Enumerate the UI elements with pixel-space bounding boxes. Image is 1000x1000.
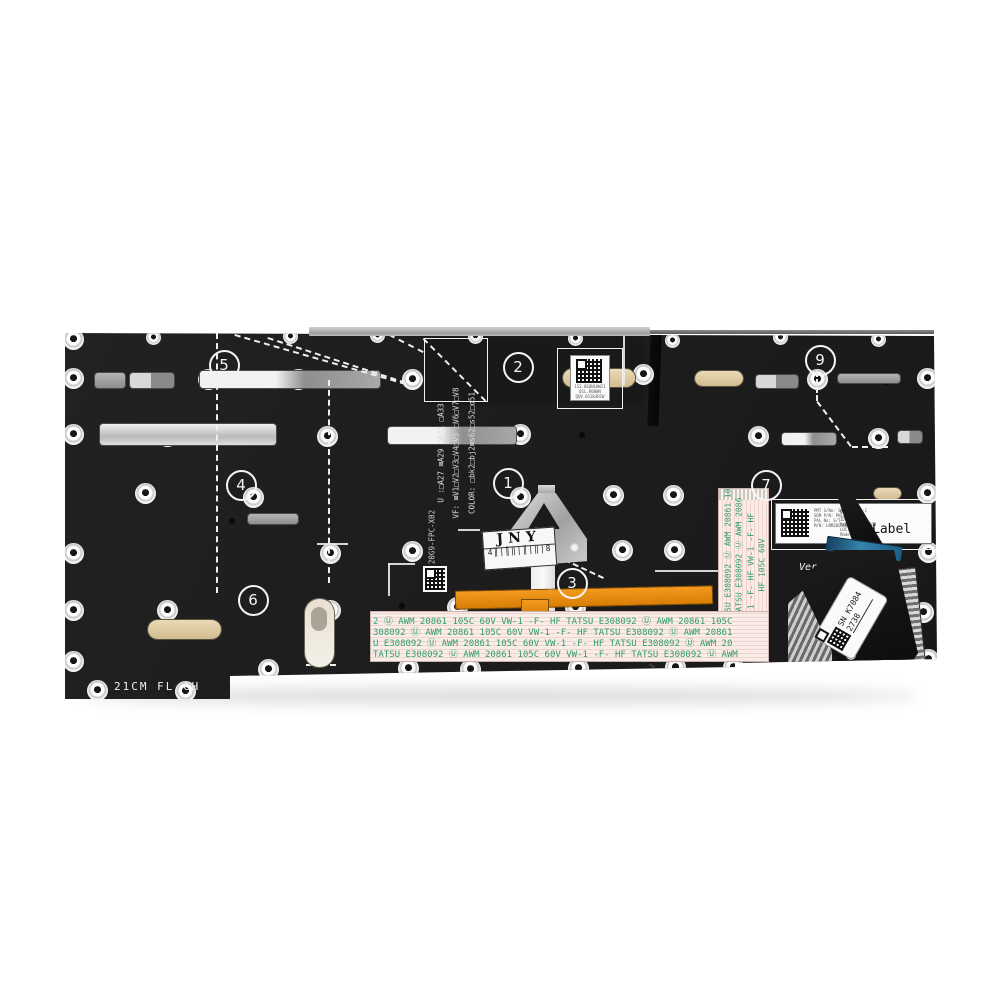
rivet (63, 424, 84, 445)
rivet (402, 541, 423, 562)
seam-line (317, 543, 348, 545)
product-photo: U :□A27 ⊠A29 □A31 □A33 VF: ⊠V1□V2□V3□V4□… (0, 0, 1000, 1000)
plate-top-edge-thin (650, 330, 934, 334)
dashed-guide-line (328, 380, 330, 583)
info-label-big-text: Label (872, 522, 911, 537)
rivet (146, 330, 161, 345)
seam-line (623, 331, 625, 385)
adhesive-pull-tab (305, 599, 334, 667)
rivet (748, 426, 769, 447)
rivet (63, 651, 84, 672)
metal-slot (100, 424, 276, 445)
ffc-vertical-text: TATSU E308092 Ⓤ AWM 20861 105 (723, 489, 734, 613)
rivet (87, 680, 108, 701)
callout-7: 7 (751, 470, 782, 501)
config-line-3: COLOR: □bk2□bj2⊠s62□s52□o51 (468, 392, 477, 514)
seam-line (458, 529, 480, 531)
rivet (135, 483, 156, 504)
plate-qr-code (425, 568, 445, 590)
fpc-part-number: 20G9-FPC-X02 (428, 510, 437, 564)
dashed-guide-line (816, 371, 818, 401)
metal-slot (130, 373, 174, 388)
qr-code-icon (781, 509, 809, 537)
rivet (63, 600, 84, 621)
rivet (917, 368, 938, 389)
rivet (63, 368, 84, 389)
ffc-vertical-text: HF 105C 60V (758, 539, 767, 592)
rivet (612, 540, 633, 561)
callout-9: 9 (805, 345, 836, 376)
metal-slot (248, 514, 298, 524)
qr-code-icon (576, 359, 602, 383)
pull-tab-mark (311, 607, 327, 631)
metal-slot (756, 375, 798, 388)
rivet (603, 485, 624, 506)
rivet (157, 600, 178, 621)
ffc-cable-vertical: TATSU E308092 Ⓤ AWM 20861 105 TATSU E308… (719, 489, 768, 613)
rivet (633, 364, 654, 385)
dashed-guide-line (852, 446, 888, 448)
qr-finder (576, 359, 587, 370)
seam-line (388, 563, 390, 596)
metal-slot (95, 373, 125, 388)
rivet (460, 659, 481, 680)
rivet (258, 659, 279, 680)
hole-dot (229, 518, 235, 524)
keyboard-backplate: U :□A27 ⊠A29 □A31 □A33 VF: ⊠V1□V2□V3□V4□… (0, 0, 1000, 1000)
rivet (283, 329, 298, 344)
qr-label-line-3: QQV.0S1B3RCW (571, 395, 609, 400)
plate-bottom-marking: 21CM FL CH (114, 680, 200, 693)
callout-6: 6 (238, 585, 269, 616)
bracket-screw (570, 543, 579, 552)
callout-2: 2 (503, 352, 534, 383)
ffc-vertical-text: 1 -F- HF VW-1 -F- HF (747, 513, 756, 609)
metal-slot (782, 433, 836, 445)
plate-top-edge-highlight (309, 327, 650, 336)
jny-label: JNY 4║|║‖|║|‖|8 (482, 527, 558, 571)
rivet (63, 329, 84, 350)
callout-4: 4 (226, 470, 257, 501)
qr-finder (781, 509, 792, 520)
rivet (63, 543, 84, 564)
qr-finder (425, 568, 436, 579)
callout-1: 1 (493, 468, 524, 499)
adhesive-pad (148, 620, 221, 639)
config-line-2: VF: ⊠V1□V2□V3□V4□V5 □V6□V7□V8 (452, 388, 461, 519)
seam-line (388, 563, 415, 565)
metal-slot (838, 374, 900, 383)
rivet (317, 426, 338, 447)
hole-dot (399, 603, 405, 609)
ffc-print-row: TATSU E308092 Ⓤ AWM 20861 105C 60V VW-1 … (373, 647, 738, 660)
callout-5: 5 (209, 350, 240, 381)
adhesive-pad (695, 371, 743, 386)
callout-3: 3 (557, 568, 588, 599)
rivet (663, 485, 684, 506)
metal-slot (898, 431, 922, 443)
service-qr-label: 1S2.0SONLHW21 01L.R080N QQV.0S1B3RCW (571, 356, 609, 400)
ffc-cable-horizontal: 2 Ⓤ AWM 20861 105C 60V VW-1 -F- HF TATSU… (371, 612, 768, 661)
rivet (665, 333, 680, 348)
rivet (664, 540, 685, 561)
rivet (320, 543, 341, 564)
ffc-vertical-text: TATSU E308092 Ⓤ AWM 2086 (734, 498, 745, 613)
adhesive-pad (874, 488, 901, 499)
rivet (402, 369, 423, 390)
config-line-1: U :□A27 ⊠A29 □A31 □A33 (437, 403, 446, 502)
hole-dot (579, 432, 585, 438)
